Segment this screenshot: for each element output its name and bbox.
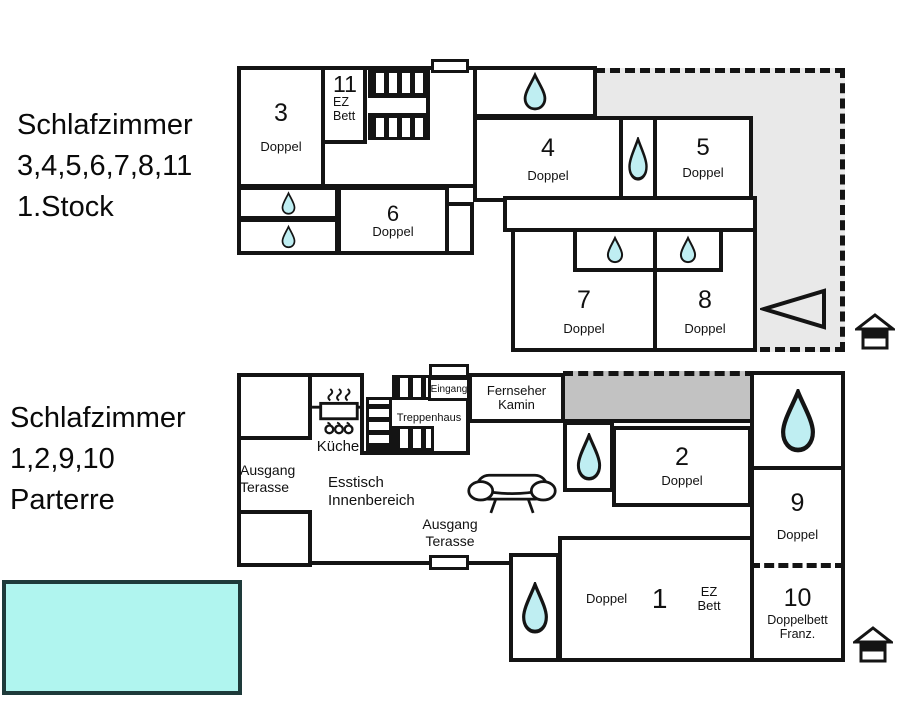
water-drop-icon [280, 191, 297, 216]
room-10-type-line1: Doppelbett [767, 614, 827, 628]
house-icon [853, 626, 893, 663]
room-2-type: Doppel [661, 474, 702, 488]
room-8-type: Doppel [684, 322, 725, 336]
room-8-number: 8 [698, 287, 712, 313]
tv-room-line2: Kamin [498, 398, 535, 412]
room-10-number: 10 [784, 585, 812, 611]
exit-terrace-bottom-line2: Terasse [414, 533, 486, 550]
floor0-room-bottom-left [237, 510, 312, 567]
stairs-icon [392, 426, 434, 451]
room-3-type: Doppel [260, 140, 301, 154]
room-11-number: 11 [333, 72, 357, 96]
room-4: 4 Doppel [473, 116, 623, 202]
room-1-number: 1 [652, 584, 668, 613]
floor1-bath-7 [573, 228, 657, 272]
room-9-type: Doppel [777, 528, 818, 542]
floor1-bath-left-1 [237, 186, 339, 220]
floor1-corridor [503, 196, 757, 232]
floor0-stairwell: Eingang Treppenhaus [360, 373, 470, 455]
floor0-bath-bottom [509, 553, 560, 662]
water-drop-icon [280, 224, 297, 250]
water-drop-icon [626, 137, 650, 181]
floor1-heading-line2: 3,4,5,6,7,8,11 [17, 146, 242, 187]
floor0-room-top-left [237, 373, 312, 440]
exit-terrace-left-label: Ausgang Terasse [240, 462, 295, 496]
stairs-icon [368, 113, 426, 140]
exit-terrace-bottom-label: Ausgang Terasse [414, 516, 486, 550]
room-3-number: 3 [274, 100, 288, 126]
floor1-bath-mid [619, 116, 657, 202]
floor1-heading-line1: Schlafzimmer [17, 105, 242, 146]
room-5-number: 5 [696, 135, 709, 160]
exit-terrace-bottom-line1: Ausgang [414, 516, 486, 533]
floor1-heading-line3: 1.Stock [17, 187, 242, 228]
floor1-bath-top [473, 66, 597, 118]
room-2-number: 2 [675, 444, 689, 470]
room-10: 10 Doppelbett Franz. [750, 563, 845, 662]
water-drop-icon [519, 582, 551, 634]
room-11: 11 EZ Bett [321, 66, 367, 144]
room-7-number: 7 [577, 287, 591, 313]
room-4-number: 4 [541, 135, 555, 161]
water-drop-icon [574, 433, 604, 481]
room-9: 9 Doppel [750, 466, 845, 567]
window-icon [429, 555, 469, 570]
water-drop-icon [777, 389, 819, 453]
dining-line1: Esstisch [328, 474, 415, 492]
stairwell-label: Treppenhaus [386, 412, 472, 424]
entrance-door: Eingang [428, 377, 470, 401]
window-icon [431, 59, 469, 73]
floor0-bath-mid [563, 421, 614, 492]
water-drop-icon [521, 72, 549, 112]
room-1: Doppel 1 EZ Bett [558, 536, 754, 662]
floor1-bath-left-2 [237, 218, 339, 255]
stair-wall [426, 66, 430, 140]
floor0-covered-terrace [563, 371, 755, 423]
tv-room-line1: Fernseher [487, 384, 546, 398]
sofa-icon [466, 460, 558, 518]
floor0-heading-line2: 1,2,9,10 [10, 439, 235, 480]
floor0-tv-room: Fernseher Kamin [468, 373, 565, 423]
floor0-heading-line1: Schlafzimmer [10, 398, 235, 439]
room-10-type-line2: Franz. [780, 628, 815, 642]
room-6: 6 Doppel [337, 186, 449, 255]
floor0-heading: Schlafzimmer 1,2,9,10 Parterre [10, 398, 235, 521]
room-1-type-right: EZ Bett [692, 585, 726, 614]
room-5-type: Doppel [682, 166, 723, 180]
window-icon [429, 364, 469, 378]
stairs-icon [368, 70, 426, 98]
room-7-type: Doppel [563, 322, 604, 336]
room-6-number: 6 [387, 202, 399, 225]
house-icon [855, 313, 895, 350]
floor1-stairwell [363, 66, 477, 144]
floorplan-page: Schlafzimmer 3,4,5,6,7,8,11 1.Stock Schl… [0, 0, 904, 704]
direction-triangle-icon [760, 288, 828, 330]
room-1-type-left: Doppel [586, 592, 627, 606]
exit-terrace-left-line2: Terasse [240, 479, 295, 496]
pool [2, 580, 242, 695]
water-drop-icon [605, 235, 625, 265]
floor1-bath-8 [653, 228, 723, 272]
room-11-type: EZ Bett [333, 96, 363, 124]
room-6-type: Doppel [372, 225, 413, 239]
room-2: 2 Doppel [612, 426, 752, 507]
entrance-label: Eingang [431, 384, 468, 395]
room-3: 3 Doppel [237, 66, 325, 188]
room-9-number: 9 [791, 490, 805, 516]
floor0-heading-line3: Parterre [10, 480, 235, 521]
room-5: 5 Doppel [653, 116, 753, 200]
dining-label: Esstisch Innenbereich [328, 474, 415, 511]
water-drop-icon [678, 235, 698, 265]
floor1-heading: Schlafzimmer 3,4,5,6,7,8,11 1.Stock [17, 105, 242, 228]
floor0-bath-right [758, 381, 838, 461]
dining-line2: Innenbereich [328, 492, 415, 510]
room-4-type: Doppel [527, 169, 568, 183]
exit-terrace-left-line1: Ausgang [240, 462, 295, 479]
